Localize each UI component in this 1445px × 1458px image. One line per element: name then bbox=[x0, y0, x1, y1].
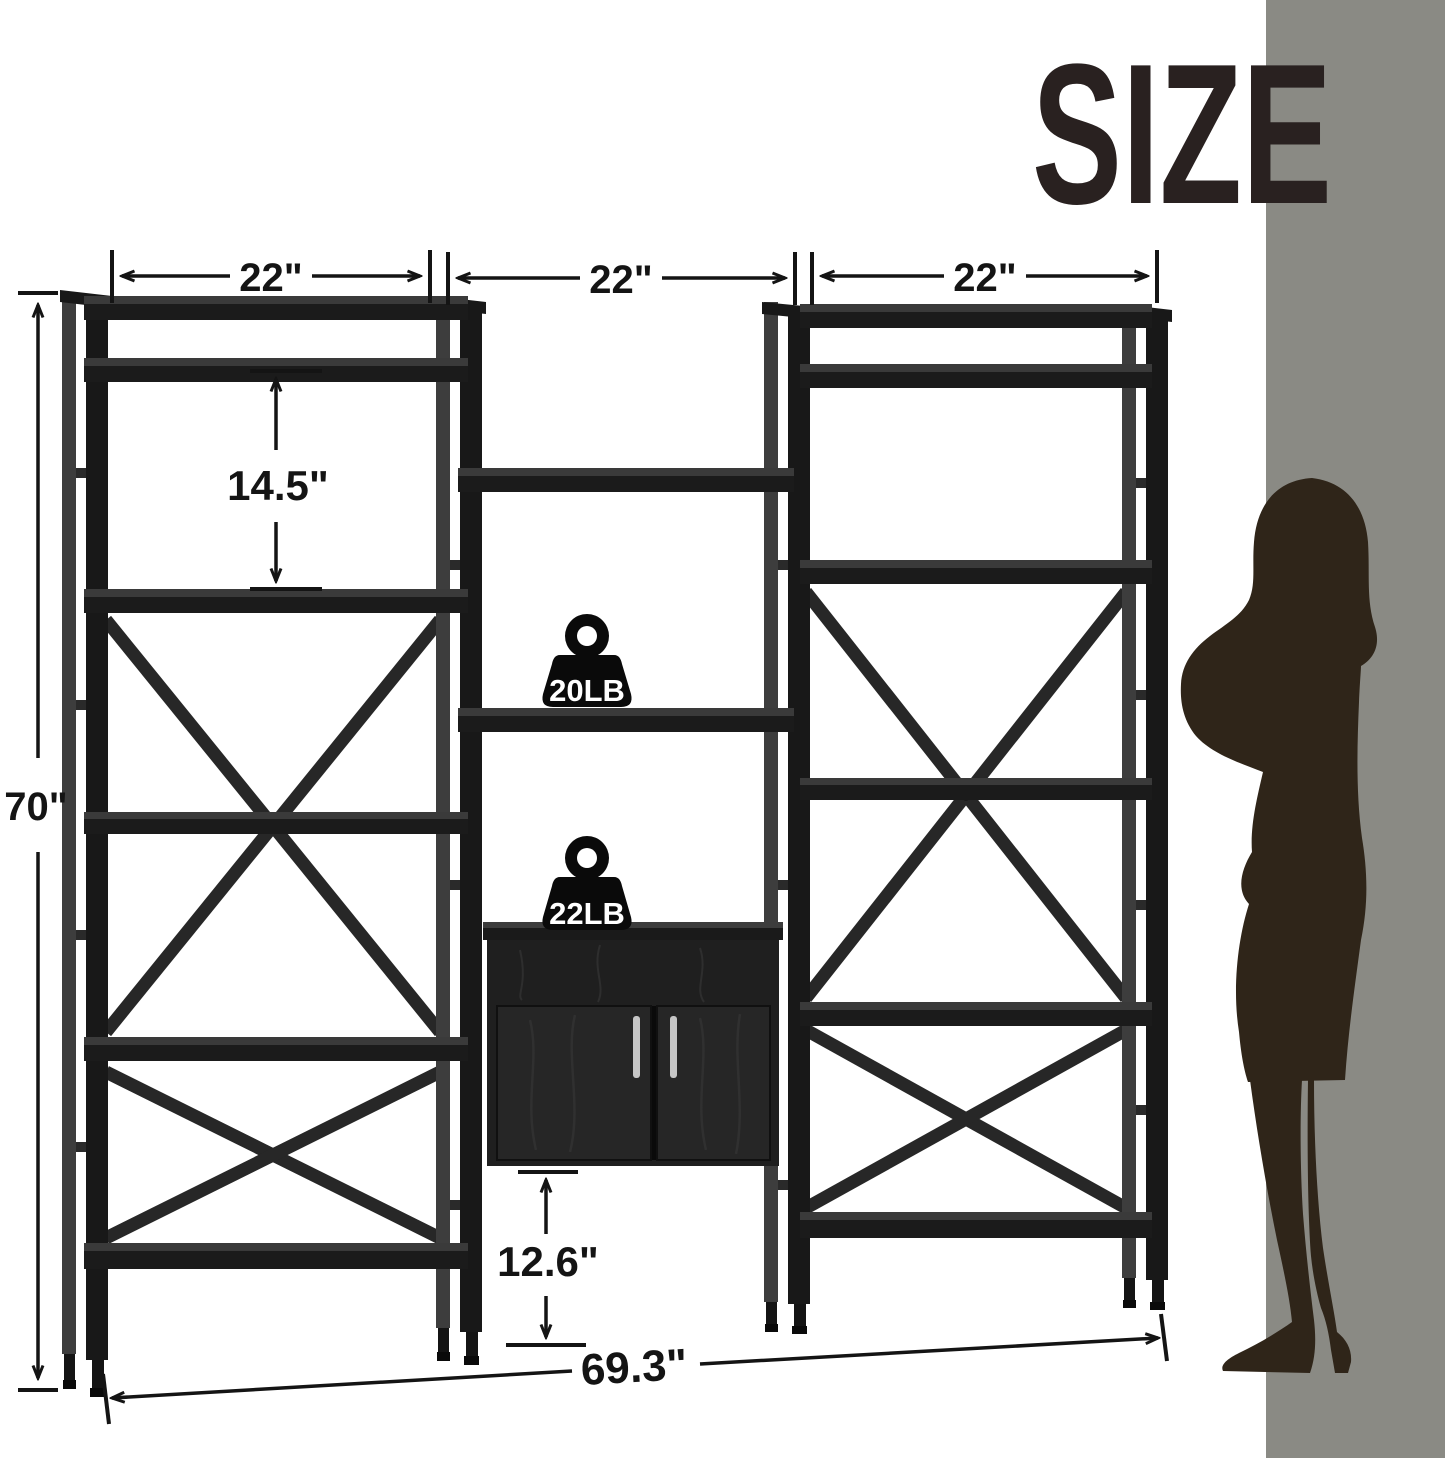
cabinet-door-left bbox=[497, 1006, 651, 1160]
shelf-weight-label: 20LB bbox=[549, 673, 625, 708]
door-handle-right-icon bbox=[670, 1016, 677, 1078]
dimension-section-width-3: 22" bbox=[812, 250, 1157, 305]
total-width-label: 69.3" bbox=[579, 1340, 688, 1395]
upright-frame-3 bbox=[762, 302, 814, 1334]
cross-brace-left-lower bbox=[106, 1072, 440, 1238]
dimension-bottom-clearance: 12.6" bbox=[497, 1172, 599, 1345]
height-label: 70" bbox=[4, 785, 67, 829]
dimension-total-width: 69.3" bbox=[103, 1314, 1167, 1424]
width-label-2: 22" bbox=[589, 258, 652, 302]
weight-20lb-icon: 20LB bbox=[542, 614, 631, 708]
cabinet-weight-label: 22LB bbox=[549, 896, 625, 931]
dimension-total-height: 70" bbox=[4, 293, 67, 1390]
width-label-1: 22" bbox=[239, 256, 302, 300]
bookshelf-illustration bbox=[60, 290, 1172, 1397]
upright-frame-1 bbox=[60, 290, 112, 1397]
size-diagram-canvas: SIZE bbox=[0, 0, 1445, 1458]
width-label-3: 22" bbox=[953, 256, 1016, 300]
upright-frame-4 bbox=[1120, 304, 1172, 1310]
cross-brace-right-lower bbox=[806, 1030, 1126, 1208]
product-size-diagram: SIZE bbox=[0, 0, 1445, 1458]
dimension-section-width-1: 22" bbox=[112, 250, 430, 303]
cabinet bbox=[483, 922, 783, 1166]
shelf-spacing-label: 14.5" bbox=[227, 462, 329, 509]
dimension-section-width-2: 22" bbox=[448, 252, 795, 305]
page-title: SIZE bbox=[1032, 23, 1332, 246]
door-handle-left-icon bbox=[633, 1016, 640, 1078]
weight-22lb-icon: 22LB bbox=[542, 836, 631, 931]
right-section-shelves bbox=[800, 304, 1152, 1238]
bottom-clearance-label: 12.6" bbox=[497, 1238, 599, 1285]
dimension-shelf-spacing: 14.5" bbox=[227, 371, 329, 589]
